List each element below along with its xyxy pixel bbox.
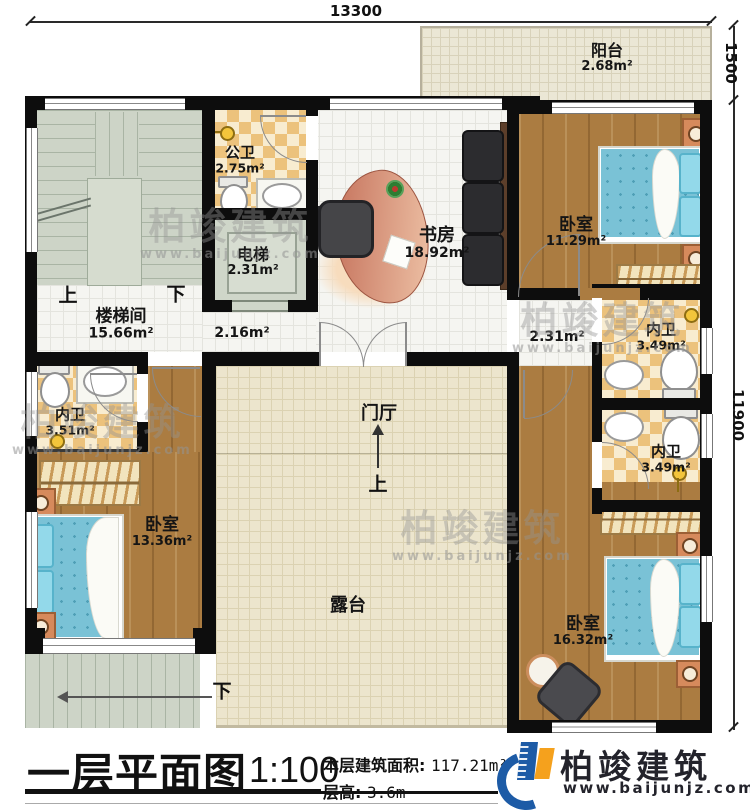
- exterior-stairs: [25, 652, 200, 728]
- stairs-up-label: 上: [58, 281, 77, 308]
- window: [26, 128, 38, 252]
- door-opening: [137, 374, 148, 422]
- door-leaf: [319, 322, 321, 366]
- terrace-edge: [216, 725, 507, 728]
- area-label-corridor-ne: 2.31m²: [529, 330, 584, 346]
- threshold-window: [43, 638, 195, 654]
- wall: [202, 352, 320, 366]
- wall-thin: [37, 449, 137, 452]
- room-label-public-bath: 公卫 2.75m²: [215, 145, 264, 176]
- wall: [193, 628, 216, 654]
- room-label-ensuite-w: 内卫 3.51m²: [45, 407, 94, 438]
- pillow: [679, 153, 702, 194]
- sink: [262, 183, 302, 209]
- exterior-down-label: 下: [212, 677, 231, 704]
- wall: [202, 208, 318, 220]
- arrow-left-icon: [57, 691, 68, 703]
- door-leaf: [405, 322, 407, 366]
- elevator-door: [232, 300, 288, 312]
- window: [45, 98, 185, 110]
- door-leaf: [152, 367, 200, 369]
- sink: [604, 360, 644, 390]
- room-label-foyer: 门厅: [361, 404, 397, 424]
- floor-area-line: 本层建筑面积: 117.21m²: [323, 752, 508, 776]
- window: [701, 414, 713, 458]
- door-leaf: [90, 373, 137, 375]
- room-label-study: 书房 18.92m²: [404, 226, 469, 262]
- window: [26, 372, 38, 436]
- pillow: [679, 563, 702, 605]
- wall: [406, 352, 519, 366]
- plant-icon: [386, 180, 404, 198]
- area-label-corridor: 2.16m²: [214, 326, 269, 342]
- wall: [25, 628, 45, 654]
- stairs-down-label: 下: [166, 280, 185, 307]
- window: [552, 722, 656, 733]
- toilet: [660, 348, 698, 392]
- door-opening: [592, 442, 602, 488]
- door-opening: [592, 298, 602, 342]
- room-label-balcony: 阳台 2.68m²: [581, 42, 632, 74]
- wall: [592, 398, 712, 410]
- pillow: [679, 606, 702, 648]
- wall: [507, 352, 519, 733]
- dimension-right-lower-label: 11900: [729, 389, 747, 441]
- title-rule-thick: [25, 789, 321, 794]
- floor-plan-canvas: 13300 1500 11900: [0, 0, 750, 811]
- arrow-up-icon: [372, 424, 384, 435]
- room-label-bedroom-sw: 卧室 13.36m²: [132, 516, 192, 550]
- room-label-stair-hall: 楼梯间 15.66m²: [88, 308, 153, 343]
- window: [701, 556, 713, 622]
- sink: [604, 412, 644, 442]
- office-chair: [318, 200, 374, 258]
- room-label-bedroom-ne: 卧室 11.29m²: [546, 216, 606, 250]
- room-label-bedroom-se: 卧室 16.32m²: [553, 615, 613, 649]
- dimension-line-right: [733, 26, 735, 730]
- shower-head-icon: [220, 126, 235, 141]
- wall: [202, 366, 216, 652]
- shower-head-icon: [684, 308, 699, 323]
- window: [701, 328, 713, 374]
- stairs-upper-flight: [95, 112, 139, 176]
- dimension-width-label: 13300: [330, 2, 382, 20]
- title-rule-light: [25, 803, 498, 804]
- shower-arm: [677, 478, 679, 492]
- sofa-cushion: [462, 130, 504, 182]
- balcony-floor: [420, 26, 712, 102]
- window: [330, 98, 502, 110]
- door-opening: [306, 116, 318, 160]
- room-label-ensuite-ne: 内卫 3.49m²: [636, 322, 685, 353]
- direction-arrow-line: [377, 434, 379, 468]
- title-rule-thin: [321, 791, 498, 794]
- room-label-elevator: 电梯 2.31m²: [227, 246, 278, 278]
- door-leaf: [523, 370, 525, 418]
- direction-arrow-line: [68, 696, 212, 698]
- room-label-terrace: 露台: [330, 596, 366, 616]
- foyer-up-label: 上: [368, 470, 387, 497]
- dimension-right-upper-label: 1500: [722, 42, 740, 84]
- window: [26, 512, 38, 608]
- room-label-ensuite-se: 内卫 3.49m²: [641, 444, 690, 475]
- door-leaf: [260, 115, 306, 117]
- stair-landing: [87, 178, 142, 286]
- brand-url: www.baijunjz.com: [563, 779, 750, 797]
- window: [552, 102, 694, 114]
- wall: [25, 352, 148, 366]
- foyer-terrace-divider: [216, 453, 507, 454]
- wall: [507, 96, 519, 300]
- wall: [592, 500, 712, 512]
- toilet: [40, 372, 70, 408]
- wall: [202, 96, 215, 312]
- dimension-line-top: [30, 21, 712, 23]
- pillow: [679, 196, 702, 237]
